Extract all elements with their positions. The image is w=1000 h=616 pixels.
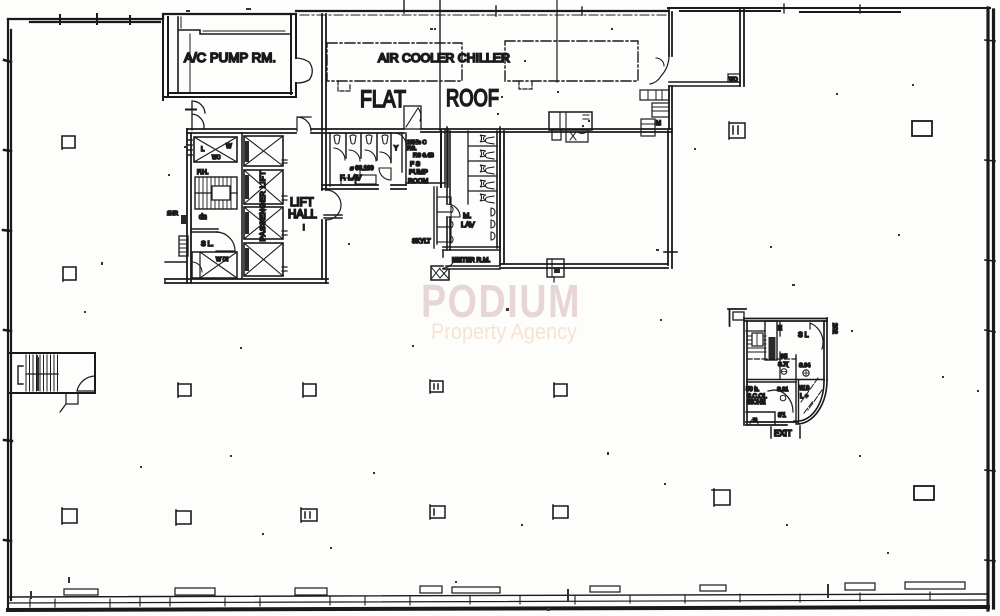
svg-text:HALL: HALL: [288, 209, 317, 221]
svg-text:WO: WO: [729, 77, 738, 83]
svg-text:EXIT: EXIT: [774, 429, 792, 438]
svg-text:LAV: LAV: [461, 220, 475, 229]
svg-text:F S: F S: [410, 161, 421, 168]
svg-text:F.H.: F.H.: [197, 169, 209, 176]
svg-text:L: L: [201, 147, 205, 153]
svg-text:ROOF: ROOF: [446, 85, 499, 112]
svg-text:LIFT: LIFT: [290, 197, 314, 209]
svg-text:i: i: [303, 225, 305, 232]
svg-text:50 h.: 50 h.: [746, 387, 760, 393]
svg-text:⌀ 66.190: ⌀ 66.190: [350, 166, 374, 172]
svg-text:A/C PUMP RM.: A/C PUMP RM.: [184, 50, 276, 65]
svg-text:F.S 6.4B: F.S 6.4B: [413, 153, 434, 159]
svg-text:Y: Y: [394, 146, 398, 152]
svg-text:8'1: 8'1: [778, 413, 786, 419]
svg-text:S.94: S.94: [799, 363, 810, 369]
svg-text:S.7(: S.7(: [778, 362, 788, 368]
svg-text:WC: WC: [212, 155, 221, 161]
svg-text:L +: L +: [800, 394, 809, 400]
svg-text:S L: S L: [798, 332, 809, 339]
svg-text:F.S.: F.S.: [407, 146, 417, 152]
svg-text:Property Agency: Property Agency: [431, 319, 577, 344]
svg-text:dn: dn: [199, 214, 207, 221]
svg-text:M.: M.: [463, 211, 471, 220]
svg-text:FLAT: FLAT: [360, 86, 406, 113]
svg-text:202: 202: [831, 323, 838, 334]
svg-text:W D!: W D!: [216, 257, 229, 263]
svg-text:M: M: [656, 121, 661, 127]
svg-text:1HR: 1HR: [167, 211, 178, 217]
svg-text:W: W: [226, 144, 232, 150]
svg-text:G5: G5: [780, 354, 787, 360]
svg-text:ROOM: ROOM: [408, 178, 428, 185]
svg-text:SKYLT: SKYLT: [412, 239, 431, 245]
svg-text:PUMP: PUMP: [409, 169, 428, 176]
svg-text:SICHE: SICHE: [747, 400, 765, 406]
svg-text:S L.: S L.: [201, 241, 214, 248]
svg-text:m: m: [753, 417, 757, 423]
svg-text:METER R.M.: METER R.M.: [452, 257, 490, 264]
svg-text:PASSENGER LIFT: PASSENGER LIFT: [258, 171, 267, 242]
svg-text:AIR COOLER CHILLER: AIR COOLER CHILLER: [378, 53, 510, 65]
